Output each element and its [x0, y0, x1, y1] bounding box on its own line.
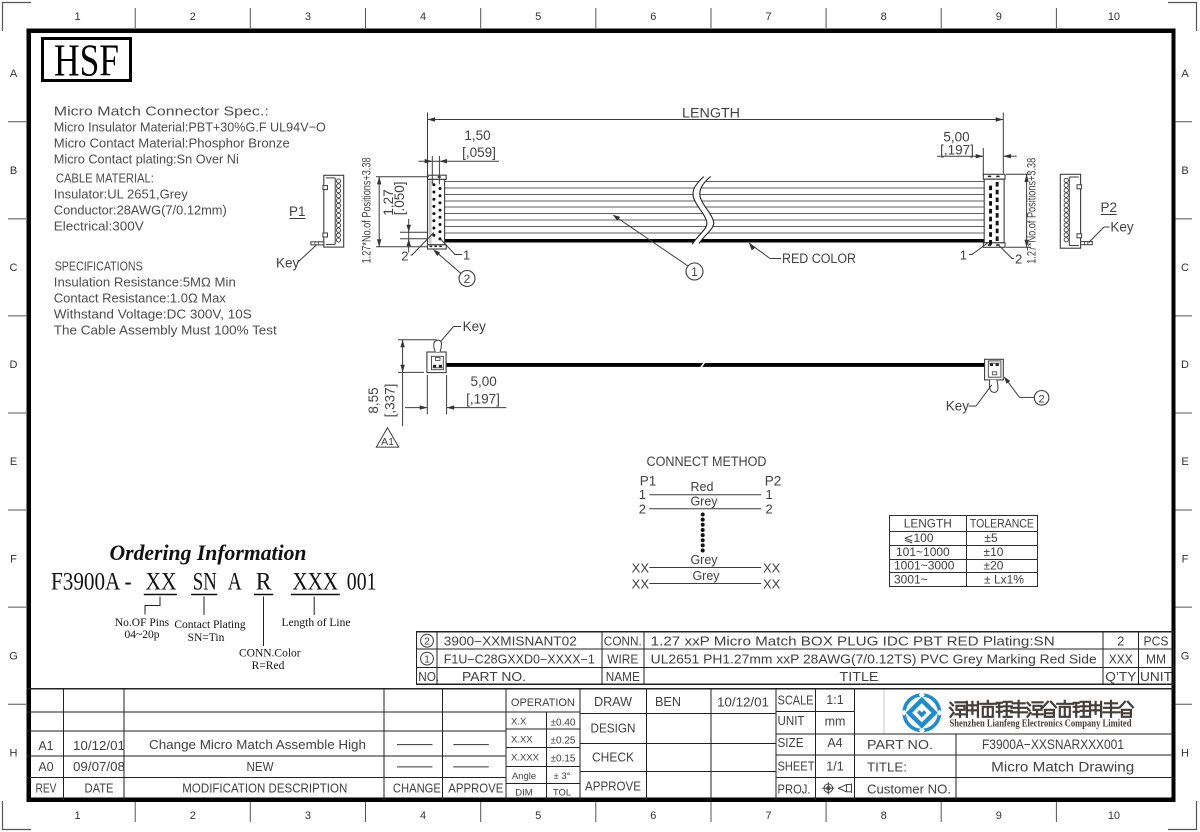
svg-text:4: 4 — [420, 11, 426, 23]
svg-text:5,00: 5,00 — [470, 374, 496, 389]
svg-text:Electrical:300V: Electrical:300V — [54, 219, 144, 234]
svg-text:CONNECT METHOD: CONNECT METHOD — [647, 454, 767, 469]
svg-text:[.050]: [.050] — [392, 182, 407, 216]
svg-text:Micro Match Drawing: Micro Match Drawing — [991, 760, 1134, 775]
svg-text:1.27*No.of Positions+3.38: 1.27*No.of Positions+3.38 — [1026, 158, 1038, 264]
svg-text:F3900A -: F3900A - — [51, 569, 132, 596]
svg-text:XX: XX — [632, 577, 650, 592]
svg-text:09/07/08: 09/07/08 — [73, 760, 125, 774]
svg-text:±20: ±20 — [984, 559, 1004, 573]
svg-text:R=Red: R=Red — [252, 660, 285, 672]
svg-text:Length of Line: Length of Line — [282, 617, 351, 629]
svg-text:8,55: 8,55 — [366, 387, 381, 413]
svg-text:CHANGE: CHANGE — [393, 782, 441, 796]
svg-text:PROJ.: PROJ. — [778, 783, 811, 797]
svg-text:1: 1 — [639, 487, 646, 502]
svg-text:10: 10 — [1108, 810, 1120, 822]
svg-text:NO.: NO. — [418, 670, 439, 684]
svg-text:SN: SN — [193, 569, 217, 596]
svg-text:XXX: XXX — [293, 569, 339, 596]
svg-text:PART NO.: PART NO. — [462, 670, 526, 684]
svg-text:OPERATION: OPERATION — [511, 697, 575, 709]
svg-text:1: 1 — [766, 487, 773, 502]
svg-text:±5: ±5 — [984, 531, 998, 545]
svg-text:6: 6 — [650, 810, 656, 822]
svg-text:Key: Key — [946, 399, 970, 414]
svg-text:1: 1 — [463, 248, 470, 263]
svg-text:3900−XXMISNANT02: 3900−XXMISNANT02 — [444, 635, 577, 649]
svg-text:CONN.: CONN. — [604, 635, 642, 649]
svg-text:± 3°: ± 3° — [554, 771, 571, 782]
svg-text:1.27*No.of Positions+3.38: 1.27*No.of Positions+3.38 — [362, 157, 374, 263]
svg-text:DESIGN: DESIGN — [591, 722, 636, 736]
svg-text:Grey: Grey — [690, 494, 718, 508]
svg-text:TITLE:: TITLE: — [867, 760, 907, 775]
svg-text:XXX: XXX — [1109, 652, 1134, 666]
svg-text:[,337]: [,337] — [383, 384, 398, 418]
svg-text:HSF: HSF — [54, 35, 119, 86]
svg-text:1.27 xxP Micro Match BOX: 1.27 xxP Micro Match BOX PLUG IDC PBT RE… — [651, 635, 1055, 649]
svg-text:PART NO.: PART NO. — [867, 737, 933, 752]
svg-text:1001~3000: 1001~3000 — [894, 559, 955, 573]
svg-text:TOLERANCE: TOLERANCE — [970, 519, 1034, 531]
svg-text:R: R — [256, 569, 272, 596]
svg-text:BEN: BEN — [655, 695, 681, 709]
svg-text:MM: MM — [1146, 652, 1166, 666]
svg-text:3: 3 — [305, 11, 311, 23]
svg-text:9: 9 — [996, 810, 1002, 822]
svg-text:A: A — [228, 569, 242, 596]
svg-text:WIRE: WIRE — [607, 652, 638, 666]
svg-text:The Cable Assembly Must 10: The Cable Assembly Must 100% Test — [54, 323, 277, 338]
svg-text:Micro Contact plating:Sn Ov: Micro Contact plating:Sn Over Ni — [54, 152, 239, 167]
svg-text:001: 001 — [347, 569, 377, 596]
svg-text:LENGTH: LENGTH — [682, 106, 740, 121]
svg-text:± Lx1%: ± Lx1% — [984, 573, 1024, 587]
svg-text:2: 2 — [190, 810, 196, 822]
svg-text:1:1: 1:1 — [826, 693, 843, 707]
svg-text:E: E — [1181, 456, 1188, 468]
svg-text:2: 2 — [639, 501, 646, 516]
svg-text:9: 9 — [996, 11, 1002, 23]
svg-text:CHECK: CHECK — [592, 751, 635, 765]
svg-text:3: 3 — [305, 810, 311, 822]
svg-text:Grey: Grey — [692, 569, 720, 583]
svg-text:X.XXX: X.XXX — [511, 753, 540, 764]
svg-text:XX: XX — [146, 569, 177, 596]
svg-text:1: 1 — [424, 654, 430, 666]
svg-text:A: A — [1181, 68, 1189, 80]
svg-text:C: C — [1181, 262, 1189, 274]
svg-text:[,197]: [,197] — [940, 142, 974, 157]
svg-text:SPECIFICATIONS: SPECIFICATIONS — [55, 259, 143, 274]
svg-text:1: 1 — [75, 11, 81, 23]
svg-text:3001~: 3001~ — [894, 573, 928, 587]
svg-text:D: D — [1181, 359, 1189, 371]
svg-text:X.X: X.X — [511, 717, 527, 728]
svg-text:Key: Key — [463, 319, 487, 334]
svg-text:2: 2 — [766, 501, 773, 516]
svg-text:RED COLOR: RED COLOR — [782, 251, 856, 266]
svg-text:⩽100: ⩽100 — [903, 531, 933, 545]
svg-text:F1U−C28GXXD0−XXXX−1: F1U−C28GXXD0−XXXX−1 — [444, 652, 595, 666]
svg-text:SCALE: SCALE — [778, 694, 814, 708]
svg-text:Withstand Voltage:DC 300V,: Withstand Voltage:DC 300V, 10S — [54, 307, 252, 322]
svg-text:A4: A4 — [827, 736, 842, 750]
svg-text:±0.40: ±0.40 — [551, 718, 576, 729]
svg-text:CABLE MATERIAL:: CABLE MATERIAL: — [56, 171, 154, 186]
svg-text:UNIT: UNIT — [778, 714, 805, 728]
svg-text:Angle: Angle — [512, 771, 536, 782]
svg-text:B: B — [10, 165, 17, 177]
svg-text:5: 5 — [535, 11, 541, 23]
svg-text:APPROVE: APPROVE — [585, 780, 641, 794]
svg-text:F3900A−XXSNARXXX001: F3900A−XXSNARXXX001 — [982, 737, 1124, 752]
svg-text:MODIFICATION DESCRIPTION: MODIFICATION DESCRIPTION — [182, 782, 347, 796]
svg-text:DRAW: DRAW — [594, 695, 632, 709]
svg-text:Key: Key — [276, 256, 300, 271]
svg-text:8: 8 — [881, 810, 887, 822]
svg-text:SN=Tin: SN=Tin — [188, 632, 225, 644]
svg-text:7: 7 — [765, 11, 771, 23]
svg-text:6: 6 — [650, 11, 656, 23]
svg-text:TITLE: TITLE — [840, 670, 879, 684]
svg-text:Shenzhen Lianfeng Electronics: Shenzhen Lianfeng Electronics Company Li… — [950, 719, 1132, 730]
svg-text:X.XX: X.XX — [511, 735, 533, 746]
svg-text:Conductor:28AWG(7/0.12mm): Conductor:28AWG(7/0.12mm) — [54, 203, 227, 218]
svg-text:10/12/01: 10/12/01 — [717, 696, 769, 710]
svg-text:XX: XX — [763, 577, 781, 592]
svg-text:UL2651 PH1.27mm xxP 28AWG(7: UL2651 PH1.27mm xxP 28AWG(7/0.12TS) PVC … — [651, 652, 1097, 666]
svg-text:2: 2 — [1015, 252, 1022, 267]
svg-text:4: 4 — [420, 810, 426, 822]
svg-text:Contact Plating: Contact Plating — [174, 619, 245, 631]
svg-text:±0.15: ±0.15 — [551, 754, 576, 765]
svg-text:H: H — [1181, 747, 1189, 759]
svg-text:Insulator:UL 2651,Grey: Insulator:UL 2651,Grey — [54, 187, 188, 202]
svg-text:F: F — [10, 553, 17, 565]
svg-text:LENGTH: LENGTH — [904, 519, 952, 531]
svg-text:A1: A1 — [38, 739, 53, 753]
svg-text:2: 2 — [401, 249, 408, 264]
svg-text:2: 2 — [1117, 635, 1124, 649]
svg-text:D: D — [10, 359, 18, 371]
svg-text:SHEET: SHEET — [778, 760, 815, 774]
svg-text:Ordering Information: Ordering Information — [110, 540, 307, 565]
svg-text:C: C — [10, 262, 18, 274]
svg-text:F: F — [1182, 553, 1189, 565]
svg-text:Grey: Grey — [690, 553, 718, 567]
svg-text:04~20p: 04~20p — [125, 629, 160, 641]
svg-text:DATE: DATE — [85, 782, 114, 796]
svg-text:2: 2 — [464, 272, 471, 286]
svg-text:1/1: 1/1 — [826, 760, 843, 774]
svg-text:Micro Contact Material:Phosp: Micro Contact Material:Phosphor Bronze — [54, 136, 290, 151]
svg-text:1: 1 — [960, 248, 967, 263]
svg-text:Key: Key — [1110, 220, 1134, 235]
svg-text:2: 2 — [1039, 393, 1045, 405]
svg-text:Red: Red — [691, 480, 714, 494]
svg-text:PCS: PCS — [1144, 635, 1169, 649]
svg-text:A: A — [10, 68, 18, 80]
svg-text:P1: P1 — [289, 204, 306, 219]
svg-text:[,059]: [,059] — [462, 145, 496, 160]
svg-text:A0: A0 — [38, 760, 53, 774]
svg-text:REV: REV — [36, 782, 58, 796]
svg-text:A1: A1 — [381, 436, 394, 448]
svg-text:XX: XX — [632, 561, 650, 576]
svg-text:±10: ±10 — [984, 545, 1004, 559]
svg-text:P2: P2 — [1101, 200, 1118, 215]
svg-text:E: E — [10, 456, 17, 468]
svg-text:[,197]: [,197] — [466, 391, 500, 406]
svg-text:1,50: 1,50 — [464, 128, 490, 143]
svg-text:XX: XX — [763, 561, 781, 576]
svg-text:G: G — [1181, 650, 1190, 662]
svg-text:G: G — [9, 650, 18, 662]
svg-text:Micro Match Connector Spec.: Micro Match Connector Spec.: — [54, 104, 269, 119]
svg-text:Micro Insulator Material:PBT: Micro Insulator Material:PBT+30%G.F UL94… — [54, 120, 326, 135]
svg-text:10: 10 — [1108, 11, 1120, 23]
svg-text:No.OF Pins: No.OF Pins — [115, 617, 170, 629]
svg-text:Insulation Resistance:5MΩ Mi: Insulation Resistance:5MΩ Min — [54, 275, 236, 290]
svg-text:CONN.Color: CONN.Color — [239, 648, 301, 660]
svg-text:TOL: TOL — [553, 788, 571, 799]
svg-text:1: 1 — [691, 265, 698, 279]
svg-text:101~1000: 101~1000 — [896, 545, 950, 559]
svg-text:Customer NO.: Customer NO. — [867, 782, 951, 797]
svg-text:1: 1 — [75, 810, 81, 822]
svg-text:Change Micro Match Assemble: Change Micro Match Assemble High — [149, 738, 366, 752]
svg-text:2: 2 — [190, 11, 196, 23]
svg-text:10/12/01: 10/12/01 — [73, 739, 125, 753]
svg-text:SIZE: SIZE — [778, 736, 804, 750]
svg-text:8: 8 — [881, 11, 887, 23]
svg-text:5: 5 — [535, 810, 541, 822]
svg-text:mm: mm — [825, 715, 846, 729]
svg-text:NEW: NEW — [247, 760, 274, 774]
svg-text:2: 2 — [424, 636, 430, 648]
svg-text:±0.25: ±0.25 — [551, 736, 576, 747]
svg-text:NAME: NAME — [606, 670, 640, 684]
svg-text:7: 7 — [765, 810, 771, 822]
svg-text:UNIT: UNIT — [1140, 670, 1172, 684]
svg-text:B: B — [1181, 165, 1188, 177]
svg-text:Q’TY: Q’TY — [1105, 670, 1137, 684]
svg-text:DIM: DIM — [515, 788, 533, 799]
svg-text:Contact Resistance:1.0Ω Max: Contact Resistance:1.0Ω Max — [54, 291, 226, 306]
svg-text:APPROVE: APPROVE — [448, 782, 503, 796]
svg-text:H: H — [10, 747, 18, 759]
